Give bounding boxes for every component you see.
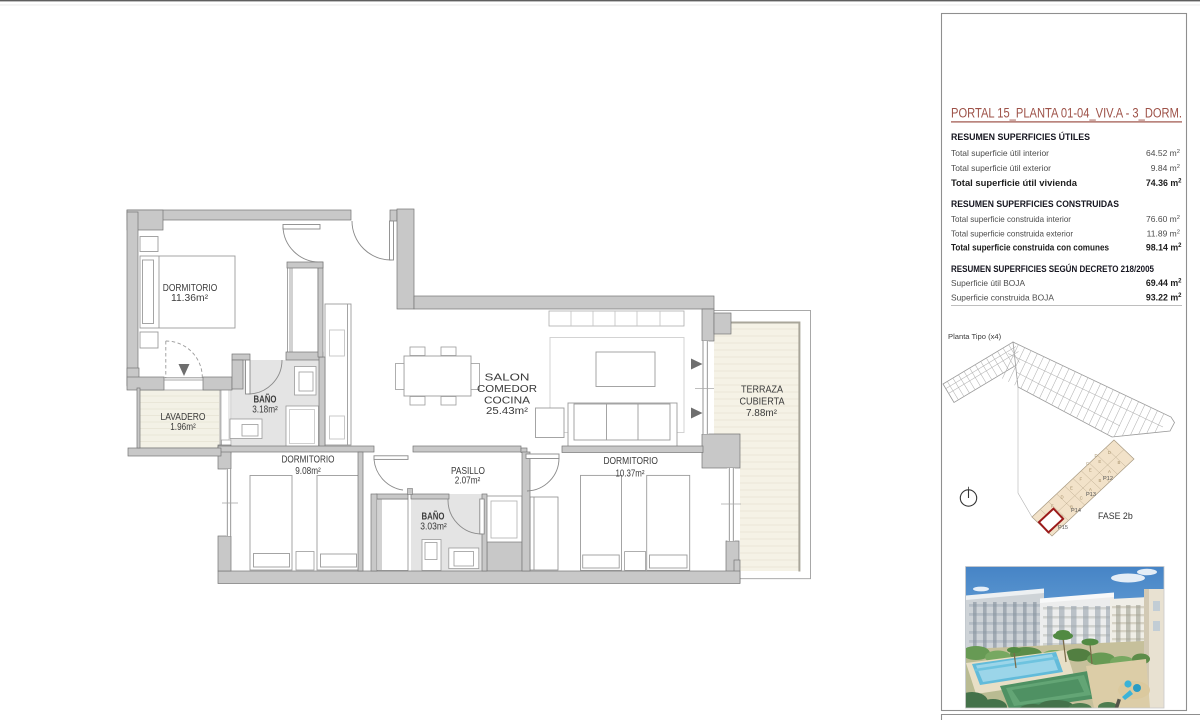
svg-text:Total superficie útil exterior: Total superficie útil exterior — [951, 163, 1051, 173]
svg-text:3.03m²: 3.03m² — [420, 522, 447, 533]
svg-text:A: A — [1108, 469, 1111, 474]
svg-text:64.52 m2: 64.52 m2 — [1146, 148, 1180, 158]
svg-text:B: B — [1118, 460, 1121, 465]
svg-text:DORMITORIO: DORMITORIO — [282, 455, 335, 466]
svg-text:D: D — [1108, 450, 1111, 455]
svg-text:2.07m²: 2.07m² — [455, 475, 481, 486]
svg-text:3.18m²: 3.18m² — [252, 405, 278, 416]
svg-text:11.89 m2: 11.89 m2 — [1147, 229, 1180, 239]
svg-text:Total superficie construida in: Total superficie construida interior — [951, 214, 1071, 224]
svg-text:Total superficie útil vivienda: Total superficie útil vivienda — [951, 178, 1077, 188]
svg-text:B: B — [1099, 478, 1102, 483]
svg-text:93.22 m2: 93.22 m2 — [1146, 292, 1182, 302]
svg-text:E: E — [1070, 486, 1073, 491]
svg-text:Total superficie construida ex: Total superficie construida exterior — [951, 229, 1073, 239]
svg-text:Superficie construida BOJA: Superficie construida BOJA — [951, 292, 1054, 302]
svg-text:10.37m²: 10.37m² — [616, 469, 646, 480]
svg-text:98.14 m2: 98.14 m2 — [1146, 242, 1182, 252]
svg-text:25.43m²: 25.43m² — [486, 406, 529, 417]
svg-text:P14: P14 — [1071, 508, 1081, 514]
svg-text:1.96m²: 1.96m² — [170, 422, 196, 433]
svg-text:9.08m²: 9.08m² — [295, 466, 321, 477]
svg-text:CUBIERTA: CUBIERTA — [740, 397, 785, 408]
svg-text:C: C — [1080, 496, 1083, 501]
svg-text:C: C — [1086, 461, 1089, 466]
svg-text:Total superficie construida co: Total superficie construida con comunes — [951, 242, 1109, 252]
svg-text:69.44 m2: 69.44 m2 — [1146, 278, 1182, 288]
svg-text:11.36m²: 11.36m² — [171, 293, 209, 304]
svg-text:74.36 m2: 74.36 m2 — [1146, 178, 1182, 188]
svg-text:RESUMEN SUPERFICIES ÚTILES: RESUMEN SUPERFICIES ÚTILES — [951, 131, 1090, 142]
svg-text:E: E — [1098, 459, 1101, 464]
svg-text:7.88m²: 7.88m² — [746, 408, 778, 419]
svg-text:P15: P15 — [1058, 525, 1068, 531]
svg-text:P12: P12 — [1103, 476, 1113, 482]
svg-text:TERRAZA: TERRAZA — [741, 385, 783, 396]
svg-text:D: D — [1095, 453, 1098, 458]
svg-text:E: E — [1089, 468, 1092, 473]
svg-text:D: D — [1061, 494, 1064, 499]
svg-text:DORMITORIO: DORMITORIO — [603, 456, 658, 467]
svg-text:76.60 m2: 76.60 m2 — [1146, 214, 1180, 224]
svg-text:FASE 2b: FASE 2b — [1098, 511, 1133, 521]
svg-text:F: F — [1080, 477, 1083, 482]
svg-text:RESUMEN SUPERFICIES CONSTRUIDA: RESUMEN SUPERFICIES CONSTRUIDAS — [951, 199, 1119, 209]
svg-text:Total superficie útil interior: Total superficie útil interior — [951, 148, 1049, 158]
svg-text:COMEDOR: COMEDOR — [477, 384, 537, 395]
svg-text:Planta Tipo (x4): Planta Tipo (x4) — [948, 332, 1002, 341]
svg-text:SALON: SALON — [485, 373, 530, 384]
svg-text:PORTAL 15_PLANTA 01-04_VIV.A -: PORTAL 15_PLANTA 01-04_VIV.A - 3_DORM. — [951, 106, 1182, 121]
svg-text:Superficie útil BOJA: Superficie útil BOJA — [951, 278, 1025, 288]
svg-text:COCINA: COCINA — [484, 396, 531, 407]
svg-text:P13: P13 — [1086, 492, 1096, 498]
svg-text:RESUMEN SUPERFICIES SEGÚN DECR: RESUMEN SUPERFICIES SEGÚN DECRETO 218/20… — [951, 263, 1154, 274]
svg-text:9.84 m2: 9.84 m2 — [1151, 163, 1180, 173]
